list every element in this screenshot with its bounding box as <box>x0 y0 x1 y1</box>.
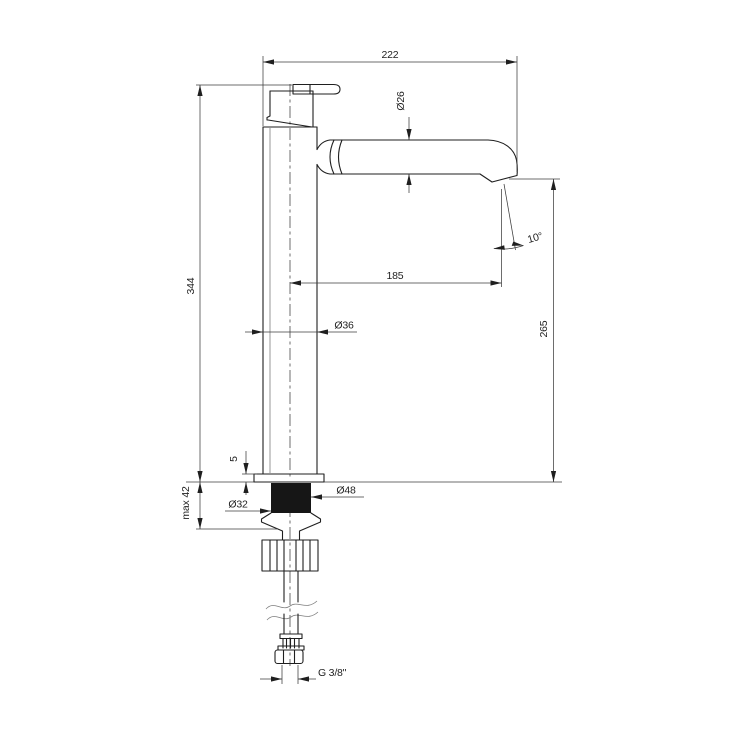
dim-total-height-label: 344 <box>185 277 197 294</box>
break-line <box>266 601 317 609</box>
dim-spout-tube-diameter: Ø26 <box>395 91 412 193</box>
dim-spout-projection: 185 <box>290 189 502 287</box>
dim-shank-diameter: Ø32 <box>225 499 271 514</box>
dim-base-plate-height: 5 <box>228 451 257 495</box>
lever-handle <box>293 85 340 95</box>
dim-spout-reach-label: 222 <box>382 49 399 61</box>
faucet-outline <box>186 84 562 666</box>
spout <box>317 140 517 182</box>
base-flange <box>186 474 562 482</box>
dim-spout-projection-label: 185 <box>387 270 404 282</box>
mounting-shank <box>262 513 321 540</box>
dim-spout-reach: 222 <box>263 49 517 172</box>
dim-supply-thread-label: G 3/8" <box>318 667 347 679</box>
hose-connector <box>275 634 304 664</box>
hex-nut <box>275 650 303 664</box>
dim-base-diameter: Ø48 <box>311 485 364 500</box>
dim-outlet-height-label: 265 <box>538 320 550 337</box>
dim-spout-tube-diameter-label: Ø26 <box>395 91 407 111</box>
dim-max-mounting-thickness-label: max 42 <box>180 486 192 520</box>
dim-body-diameter-label: Ø36 <box>334 320 354 332</box>
dim-shank-diameter-label: Ø32 <box>228 499 248 511</box>
dim-supply-thread: G 3/8" <box>260 665 347 684</box>
dim-base-diameter-label: Ø48 <box>336 485 356 497</box>
dim-outlet-angle-label: 10° <box>526 230 544 246</box>
dim-base-plate-height-label: 5 <box>228 456 240 462</box>
base-gasket <box>271 483 311 513</box>
dim-total-height: 344 <box>185 85 292 482</box>
faucet-technical-drawing: 222 344 Ø26 185 10° Ø36 <box>0 0 740 740</box>
dim-body-diameter: Ø36 <box>245 320 357 335</box>
dim-outlet-height: 265 <box>509 179 560 482</box>
break-line <box>267 612 318 620</box>
supply-hose <box>266 571 318 634</box>
drawing-canvas: 222 344 Ø26 185 10° Ø36 <box>0 0 740 740</box>
